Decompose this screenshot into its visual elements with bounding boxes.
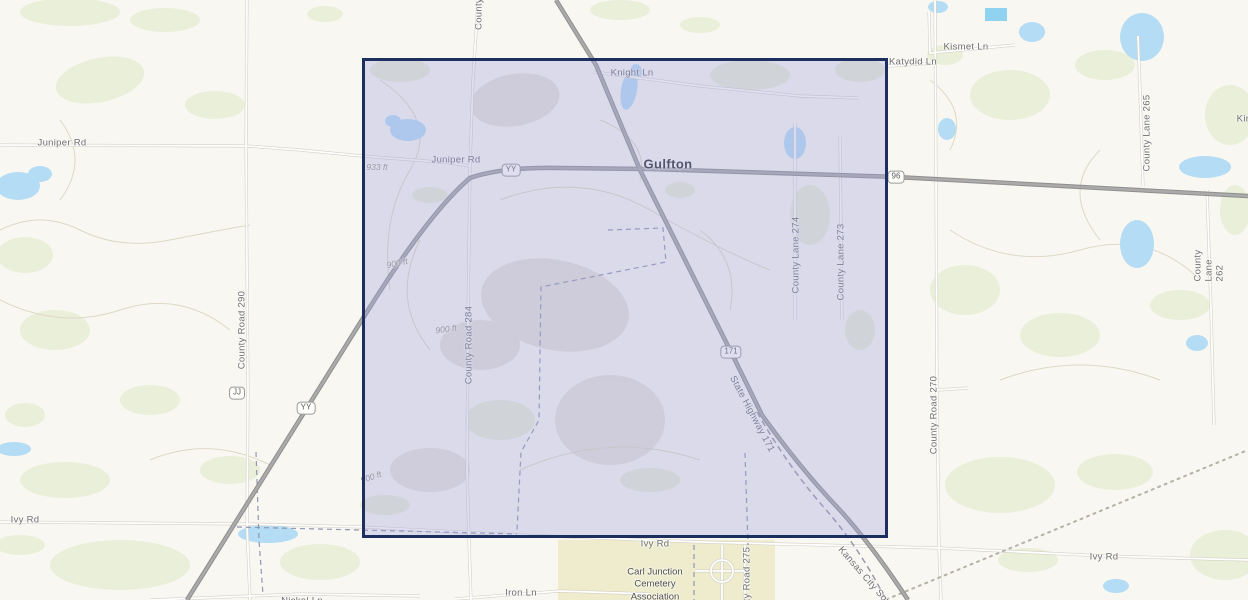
road-label: County Road 290 <box>237 291 248 369</box>
road-label: Ivy Rd <box>641 539 670 550</box>
road-label: County Road 270 <box>929 376 940 454</box>
selection-overlay[interactable] <box>362 58 888 538</box>
road-label: County Lane 262 <box>1193 243 1226 282</box>
road-label: Kansas City Southern <box>836 544 909 600</box>
road-label: County <box>474 0 485 30</box>
road-label: Iron Ln <box>505 588 537 599</box>
road-label: Ivy Rd <box>11 515 40 526</box>
road-label: Juniper Rd <box>38 138 87 149</box>
road-label: Kismet Ln <box>944 42 989 53</box>
road-label: Katydid Ln <box>889 57 937 68</box>
road-label: Ivy Rd <box>1090 552 1119 563</box>
road-label: County Lane 265 <box>1142 95 1153 172</box>
map-viewport[interactable]: GulftonJuniper RdJuniper RdKnight LnKism… <box>0 0 1248 600</box>
poi-label: Carl Junction Cemetery Association <box>627 566 682 600</box>
route-marker: 96 <box>888 171 905 184</box>
road-label: Kin <box>1237 114 1248 125</box>
route-marker: JJ <box>229 387 245 400</box>
route-marker: YY <box>297 402 316 415</box>
road-label: County Road 275 <box>742 547 753 600</box>
road-label: Nickel Ln <box>281 596 323 600</box>
